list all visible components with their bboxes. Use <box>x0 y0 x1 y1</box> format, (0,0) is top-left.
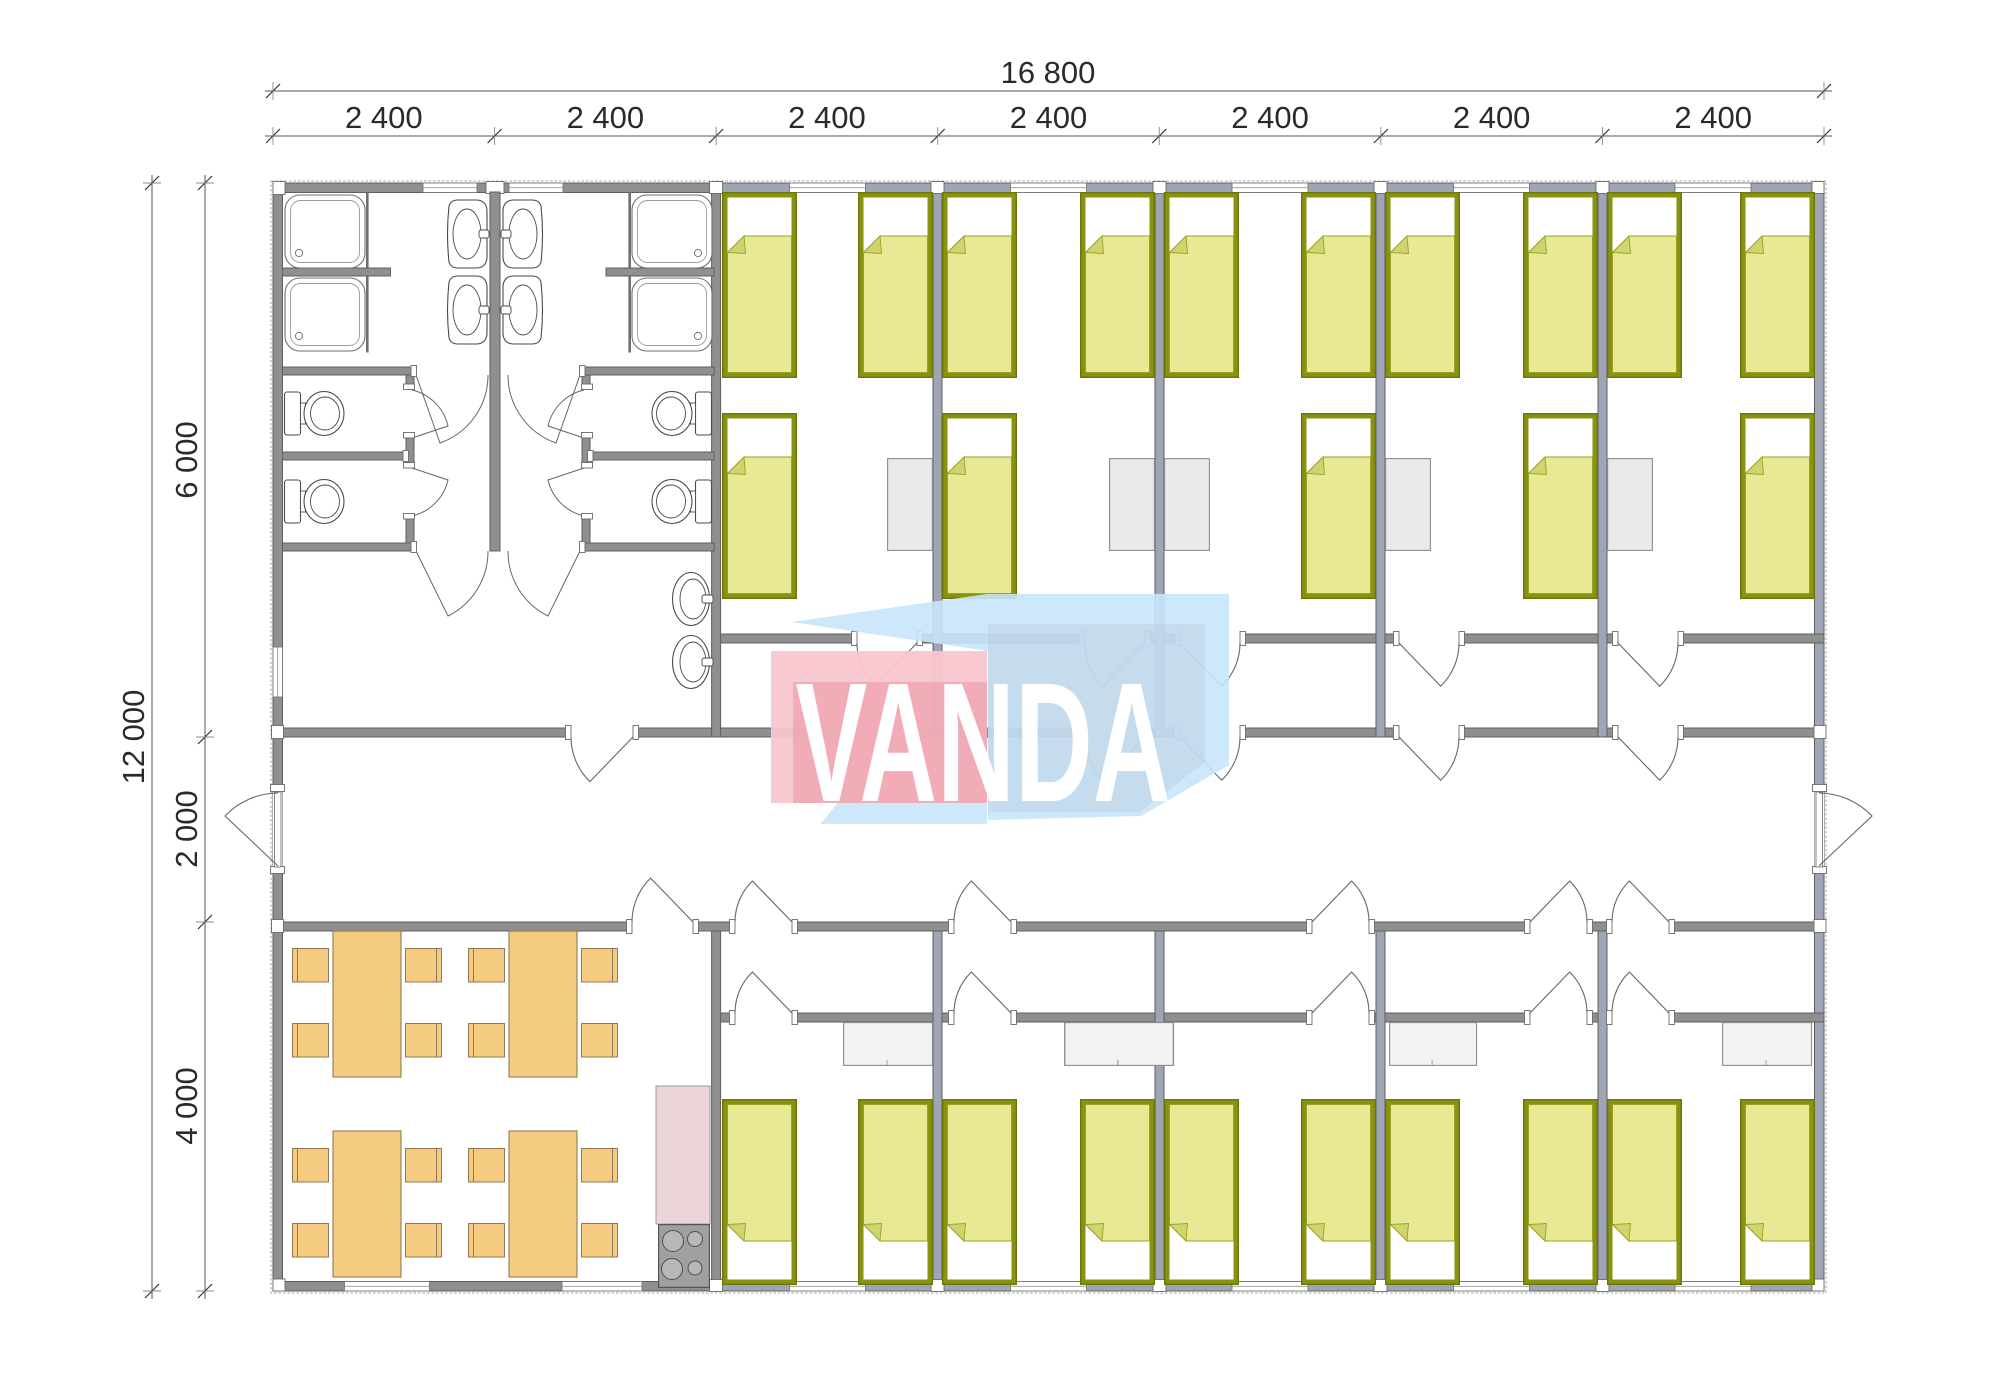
svg-text:VANDA: VANDA <box>795 648 1170 838</box>
svg-text:2 400: 2 400 <box>1010 100 1088 135</box>
svg-text:2 000: 2 000 <box>169 790 204 868</box>
svg-text:2 400: 2 400 <box>788 100 866 135</box>
svg-text:4 000: 4 000 <box>169 1067 204 1145</box>
svg-text:2 400: 2 400 <box>1674 100 1752 135</box>
svg-text:2 400: 2 400 <box>567 100 645 135</box>
svg-text:6 000: 6 000 <box>169 421 204 499</box>
svg-text:12 000: 12 000 <box>116 690 151 785</box>
svg-text:2 400: 2 400 <box>345 100 423 135</box>
svg-text:2 400: 2 400 <box>1453 100 1531 135</box>
svg-text:16 800: 16 800 <box>1001 55 1096 90</box>
svg-text:2 400: 2 400 <box>1231 100 1309 135</box>
